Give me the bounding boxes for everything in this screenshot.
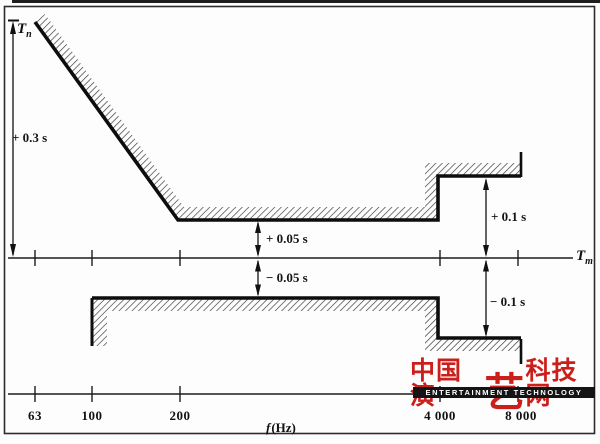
plus-01-arrow [483,178,489,257]
frequency-axis-unit-label: f(Hz) [266,420,296,436]
watermark-cn-prefix: 中国演 [410,358,485,408]
watermark-chinese-text: 中国演艺科技网 [410,358,600,408]
watermark-cn-suffix: 科技网 [526,358,600,408]
lower-tolerance-band-hatch [92,298,521,351]
tolerance-label-upper-low: + 0.3 s [12,130,47,146]
watermark-english-bar: ENTERTAINMENT TECHNOLOGY [413,387,595,398]
tolerance-label-lower-high: − 0.1 s [490,294,525,310]
upper-tolerance-limit-line [35,22,521,220]
tn-subscript: n [26,29,32,40]
upper-tolerance-band-hatch [35,14,521,220]
f-symbol: f [266,420,270,435]
tm-axis-label: Tm [576,248,593,267]
tolerance-label-lower-mid: − 0.05 s [266,270,308,286]
plus-005-arrow [255,221,261,257]
tn-symbol: T [17,21,26,37]
tolerance-chart-figure: Tn Tm + 0.3 s + 0.05 s − 0.05 s + 0.1 s … [0,0,600,444]
freq-tick-63: 63 [28,408,42,424]
tm-subscript: m [585,256,593,267]
freq-tick-4000: 4 000 [424,408,456,424]
tn-axis-label: Tn [17,21,32,40]
tolerance-label-upper-mid: + 0.05 s [266,231,308,247]
freq-tick-100: 100 [82,408,103,424]
minus-01-arrow [483,260,489,338]
tm-symbol: T [576,248,585,264]
tolerance-label-upper-high: + 0.1 s [491,209,526,225]
hz-unit: (Hz) [271,420,296,435]
minus-005-arrow [255,260,261,297]
freq-tick-200: 200 [170,408,191,424]
